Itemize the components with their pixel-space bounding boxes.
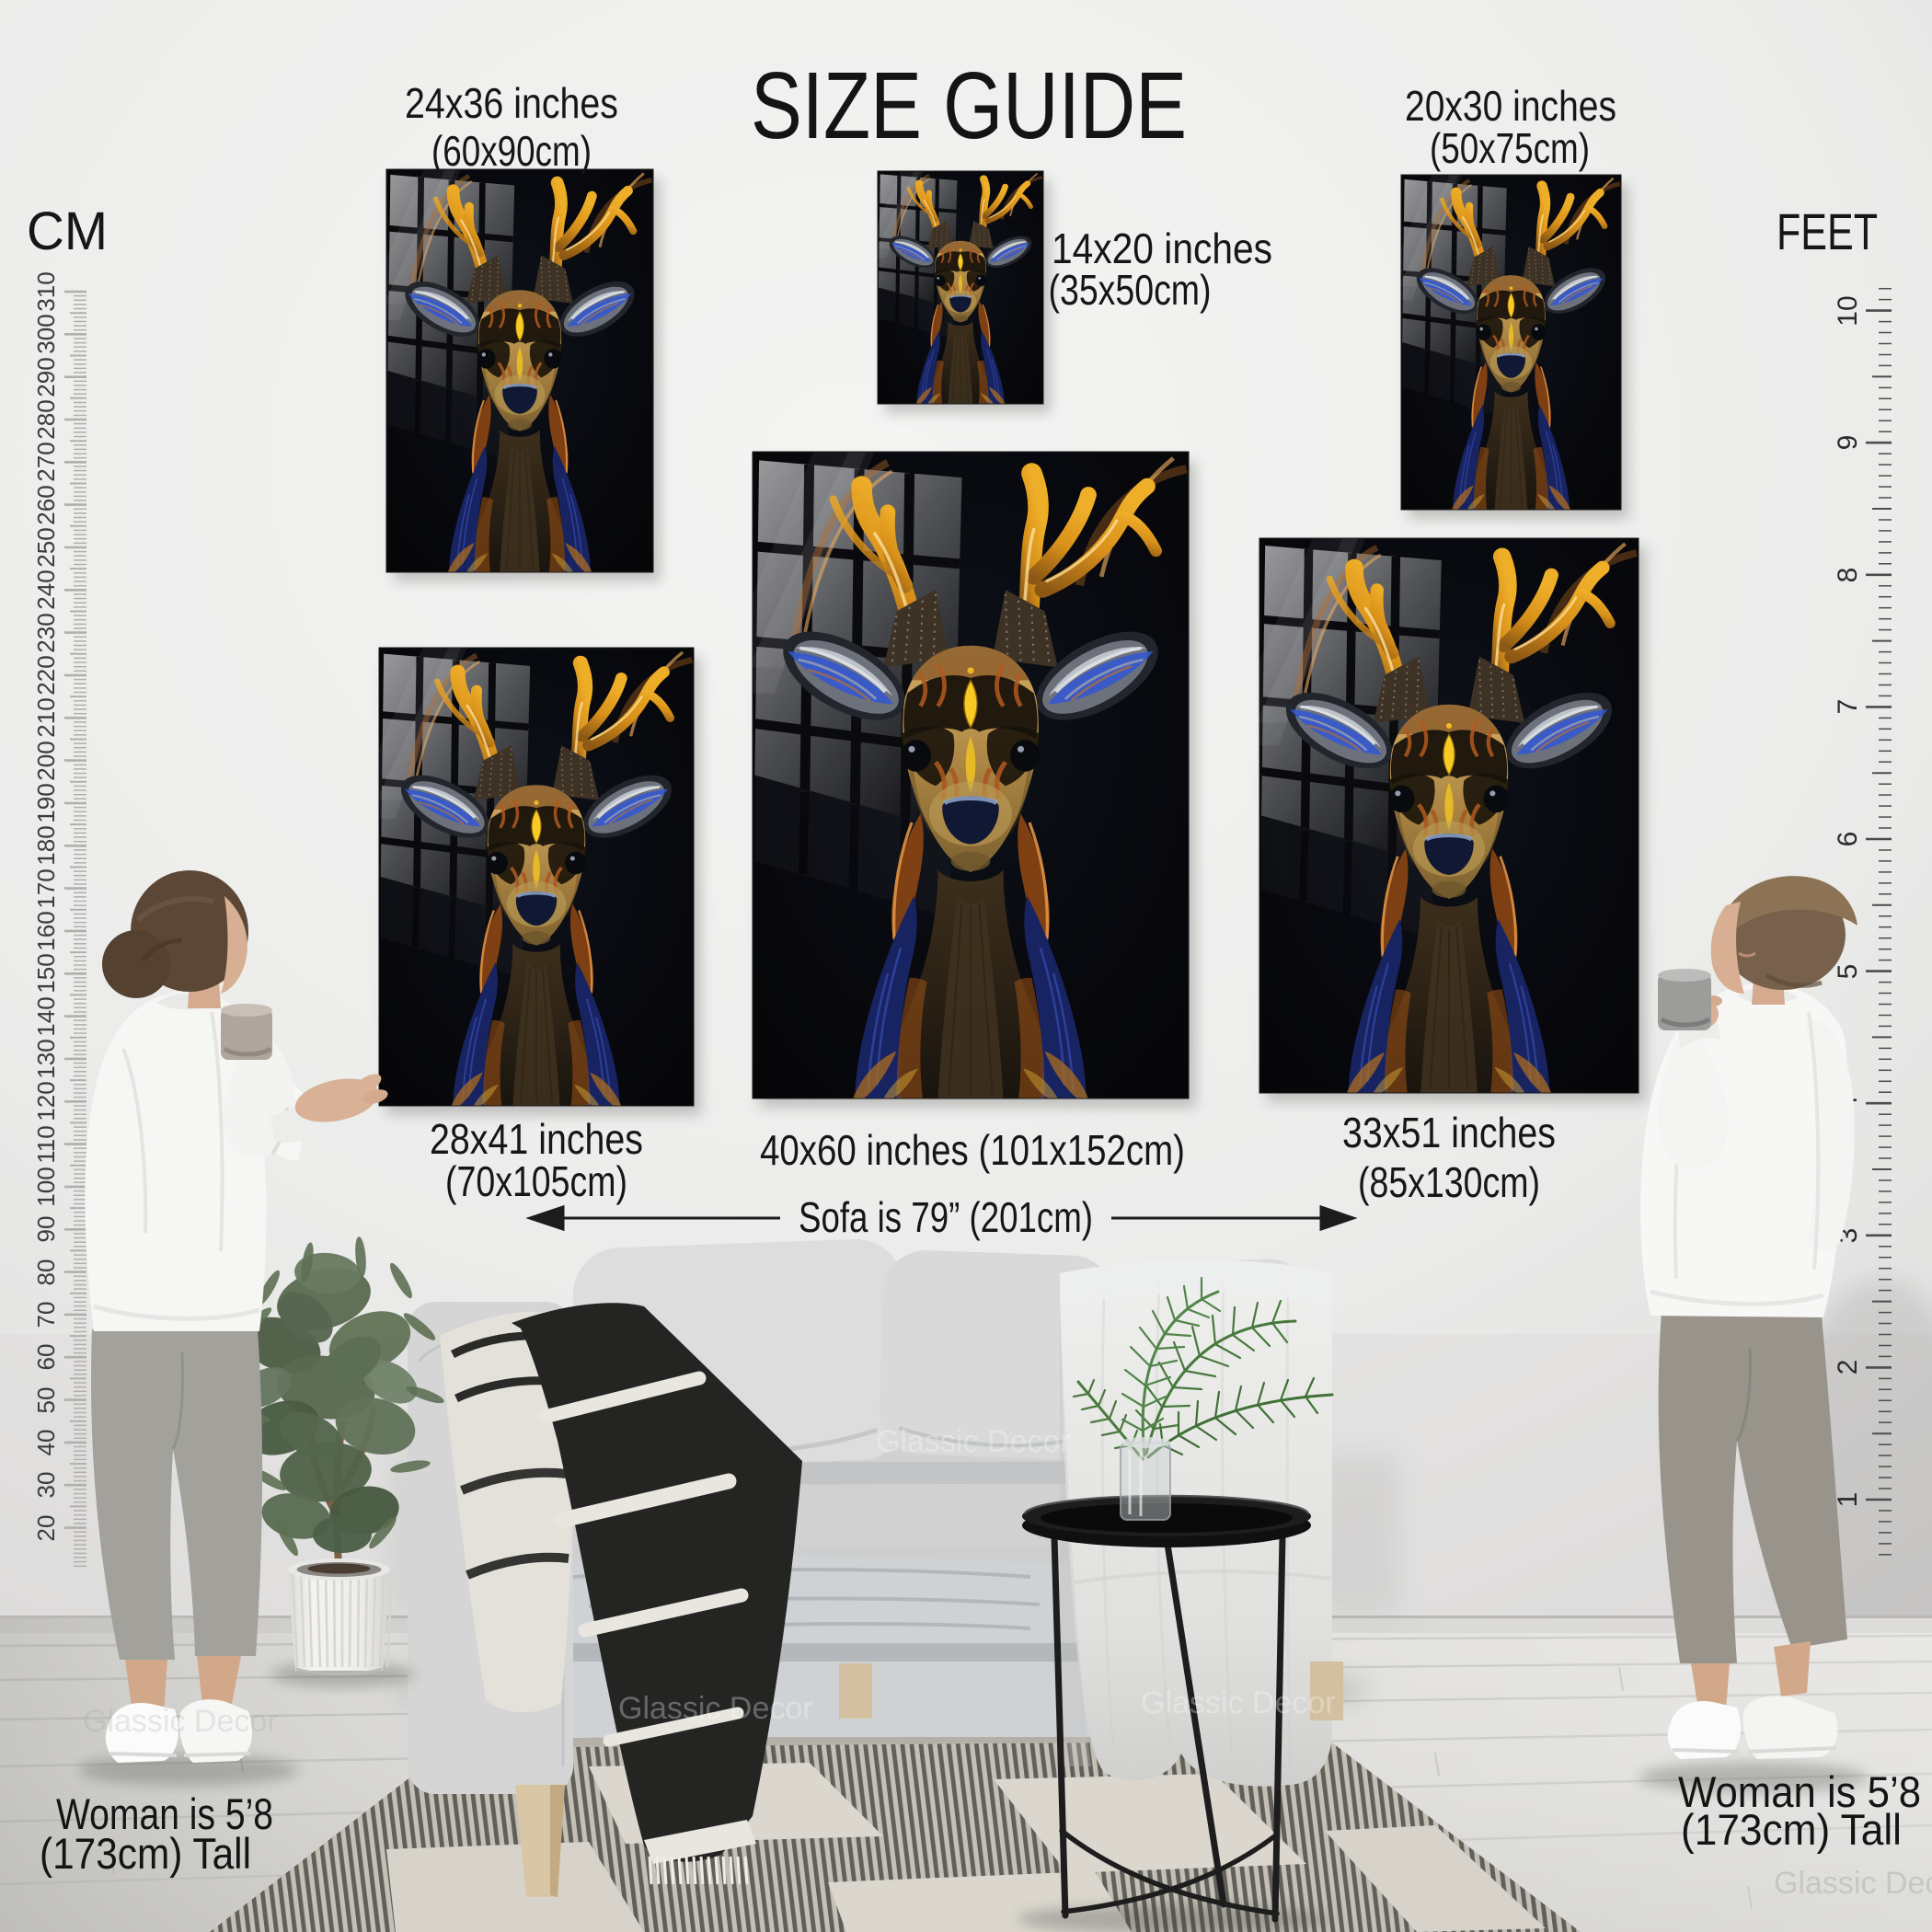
svg-text:2: 2 [1833,1360,1863,1375]
svg-text:260: 260 [32,485,60,524]
svg-text:90: 90 [32,1216,60,1243]
svg-text:Glassic Decor: Glassic Decor [1141,1685,1336,1720]
svg-text:70: 70 [32,1302,60,1328]
svg-text:250: 250 [32,527,60,567]
svg-text:130: 130 [32,1039,60,1078]
svg-text:280: 280 [32,399,60,439]
svg-text:30: 30 [32,1472,60,1499]
svg-text:240: 240 [32,569,60,609]
svg-text:120: 120 [32,1081,60,1121]
svg-text:5: 5 [1833,964,1863,980]
svg-text:Glassic Decor: Glassic Decor [618,1691,813,1726]
svg-text:28x41 inches: 28x41 inches [430,1115,643,1163]
svg-text:20x30 inches: 20x30 inches [1405,82,1616,130]
svg-text:230: 230 [32,613,60,652]
svg-text:210: 210 [32,697,60,737]
svg-text:180: 180 [32,825,60,865]
svg-text:160: 160 [32,911,60,950]
svg-text:270: 270 [32,442,60,481]
svg-text:(173cm) Tall: (173cm) Tall [1681,1805,1902,1854]
svg-text:60: 60 [32,1344,60,1371]
svg-text:Glassic Decor: Glassic Decor [1774,1866,1932,1901]
svg-text:8: 8 [1833,568,1863,583]
svg-text:200: 200 [32,741,60,780]
svg-text:220: 220 [32,655,60,695]
svg-text:300: 300 [32,314,60,353]
svg-text:(50x75cm): (50x75cm) [1430,124,1590,172]
svg-text:20: 20 [32,1515,60,1542]
svg-text:33x51 inches: 33x51 inches [1342,1109,1556,1156]
svg-text:170: 170 [32,868,60,908]
svg-text:FEET: FEET [1777,202,1878,260]
svg-text:40: 40 [32,1430,60,1456]
svg-text:(85x130cm): (85x130cm) [1358,1158,1540,1206]
svg-text:1: 1 [1833,1492,1863,1508]
svg-text:9: 9 [1833,435,1863,451]
svg-text:110: 110 [32,1125,60,1163]
svg-text:190: 190 [32,783,60,822]
svg-text:140: 140 [32,996,60,1036]
svg-text:Glassic Decor: Glassic Decor [876,1424,1071,1459]
svg-text:(35x50cm): (35x50cm) [1049,266,1212,314]
svg-text:Glassic Decor: Glassic Decor [83,1704,278,1739]
svg-text:(60x90cm): (60x90cm) [431,127,592,175]
svg-text:(70x105cm): (70x105cm) [445,1157,627,1205]
svg-text:CM: CM [27,201,108,261]
svg-text:150: 150 [32,953,60,993]
svg-text:80: 80 [32,1259,60,1286]
svg-text:100: 100 [32,1167,60,1206]
svg-text:6: 6 [1833,832,1863,847]
svg-text:50: 50 [32,1387,60,1414]
svg-text:24x36 inches: 24x36 inches [405,79,618,127]
svg-text:Sofa is 79” (201cm): Sofa is 79” (201cm) [799,1193,1093,1241]
svg-text:7: 7 [1833,699,1863,715]
svg-text:40x60 inches (101x152cm): 40x60 inches (101x152cm) [760,1126,1185,1174]
svg-text:(173cm) Tall: (173cm) Tall [40,1829,251,1878]
svg-text:290: 290 [32,357,60,397]
svg-text:10: 10 [1833,295,1863,326]
svg-text:310: 310 [32,271,60,311]
svg-text:SIZE GUIDE: SIZE GUIDE [751,52,1187,158]
